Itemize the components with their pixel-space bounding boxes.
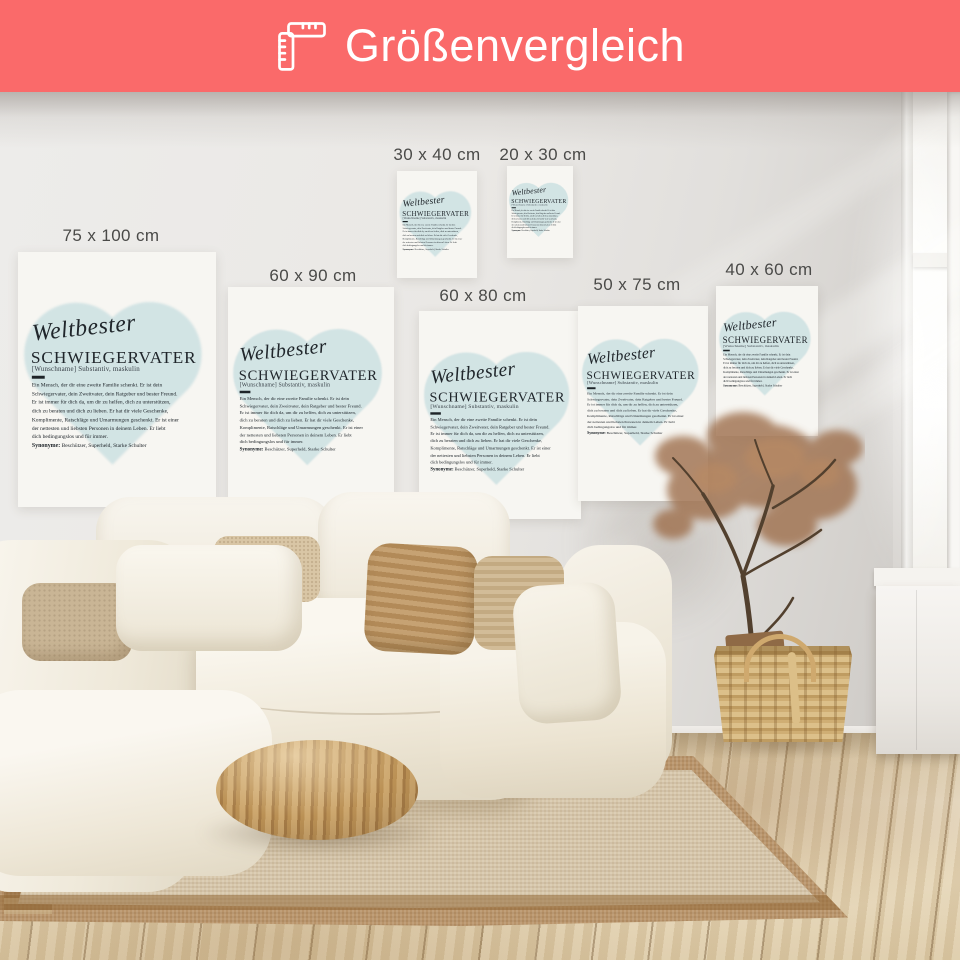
size-label-60x80: 60 x 80 cm [439,286,526,306]
poster-subtitle: [Wunschname] Substantiv, maskulin [240,382,331,389]
size-label-20x30: 20 x 30 cm [499,145,586,165]
size-label-75x100: 75 x 100 cm [62,226,159,246]
rug-border-band [0,895,848,910]
poster-subtitle: [Wunschname] Substantiv, maskulin [430,403,518,409]
poster-20x30: Weltbester SCHWIEGERVATER [Wunschname] S… [507,166,573,258]
poster-30x40: Weltbester SCHWIEGERVATER [Wunschname] S… [397,171,477,278]
poster-subtitle: [Wunschname] Substantiv, maskulin [403,217,447,220]
poster-divider [430,412,441,414]
poster-synonyms: Synonyme: Beschützer, Superheld, Starke … [430,467,555,472]
poster-definition-text: Ein Mensch, der dir eine zweite Familie … [240,396,368,447]
poster-divider [587,387,595,389]
poster-synonyms: Synonyme: Beschützer, Superheld, Starke … [403,248,465,250]
poster-artwork: Weltbester SCHWIEGERVATER [Wunschname] S… [507,166,573,258]
poster-definition-text: Ein Mensch, der dir eine zweite Familie … [403,223,465,247]
poster-synonyms: Synonyme: Beschützer, Superheld, Starke … [512,230,563,232]
poster-artwork: Weltbester SCHWIEGERVATER [Wunschname] S… [419,311,581,519]
poster-divider [512,207,516,208]
poster-divider [240,391,251,393]
wall-top-shadow [0,92,960,148]
pillow-cream-right [511,581,622,726]
poster-divider [403,221,408,222]
rattan-pouf [216,740,418,840]
poster-divider [32,376,45,378]
page-title: Größenvergleich [345,20,685,72]
poster-definition-text: Ein Mensch, der dir eine zweite Familie … [512,209,563,229]
pillow-cream-large [116,545,302,651]
poster-divider [723,350,730,351]
white-cabinet [876,586,960,754]
poster-75x100: Weltbester SCHWIEGERVATER [Wunschname] S… [18,252,216,507]
poster-subtitle: [Wunschname] Substantiv, maskulin [512,204,548,207]
size-label-60x90: 60 x 90 cm [269,266,356,286]
poster-60x90: Weltbester SCHWIEGERVATER [Wunschname] S… [228,287,394,517]
size-label-40x60: 40 x 60 cm [725,260,812,280]
poster-artwork: Weltbester SCHWIEGERVATER [Wunschname] S… [397,171,477,278]
folding-ruler-icon [275,19,329,73]
poster-synonyms: Synonyme: Beschützer, Superheld, Starke … [32,443,184,449]
poster-artwork: Weltbester SCHWIEGERVATER [Wunschname] S… [18,252,216,507]
poster-definition-text: Ein Mensch, der dir eine zweite Familie … [32,382,184,442]
size-comparison-image: Weltbester SCHWIEGERVATER [Wunschname] S… [0,0,960,960]
poster-60x80: Weltbester SCHWIEGERVATER [Wunschname] S… [419,311,581,519]
size-label-30x40: 30 x 40 cm [393,145,480,165]
poster-synonyms: Synonyme: Beschützer, Superheld, Starke … [240,447,368,452]
poster-synonyms: Synonyme: Beschützer, Superheld, Starke … [723,384,802,387]
size-label-50x75: 50 x 75 cm [593,275,680,295]
poster-definition-text: Ein Mensch, der dir eine zweite Familie … [430,417,555,466]
poster-subtitle: [Wunschname] Substantiv, maskulin [32,365,140,373]
pillow-tan-ribbed [363,542,479,656]
window-sill [874,568,960,586]
poster-artwork: Weltbester SCHWIEGERVATER [Wunschname] S… [228,287,394,517]
header-banner: Größenvergleich [0,0,960,92]
poster-definition-text: Ein Mensch, der dir eine zweite Familie … [723,353,802,384]
poster-subtitle: [Wunschname] Substantiv, maskulin [587,380,658,385]
poster-subtitle: [Wunschname] Substantiv, maskulin [723,344,779,348]
